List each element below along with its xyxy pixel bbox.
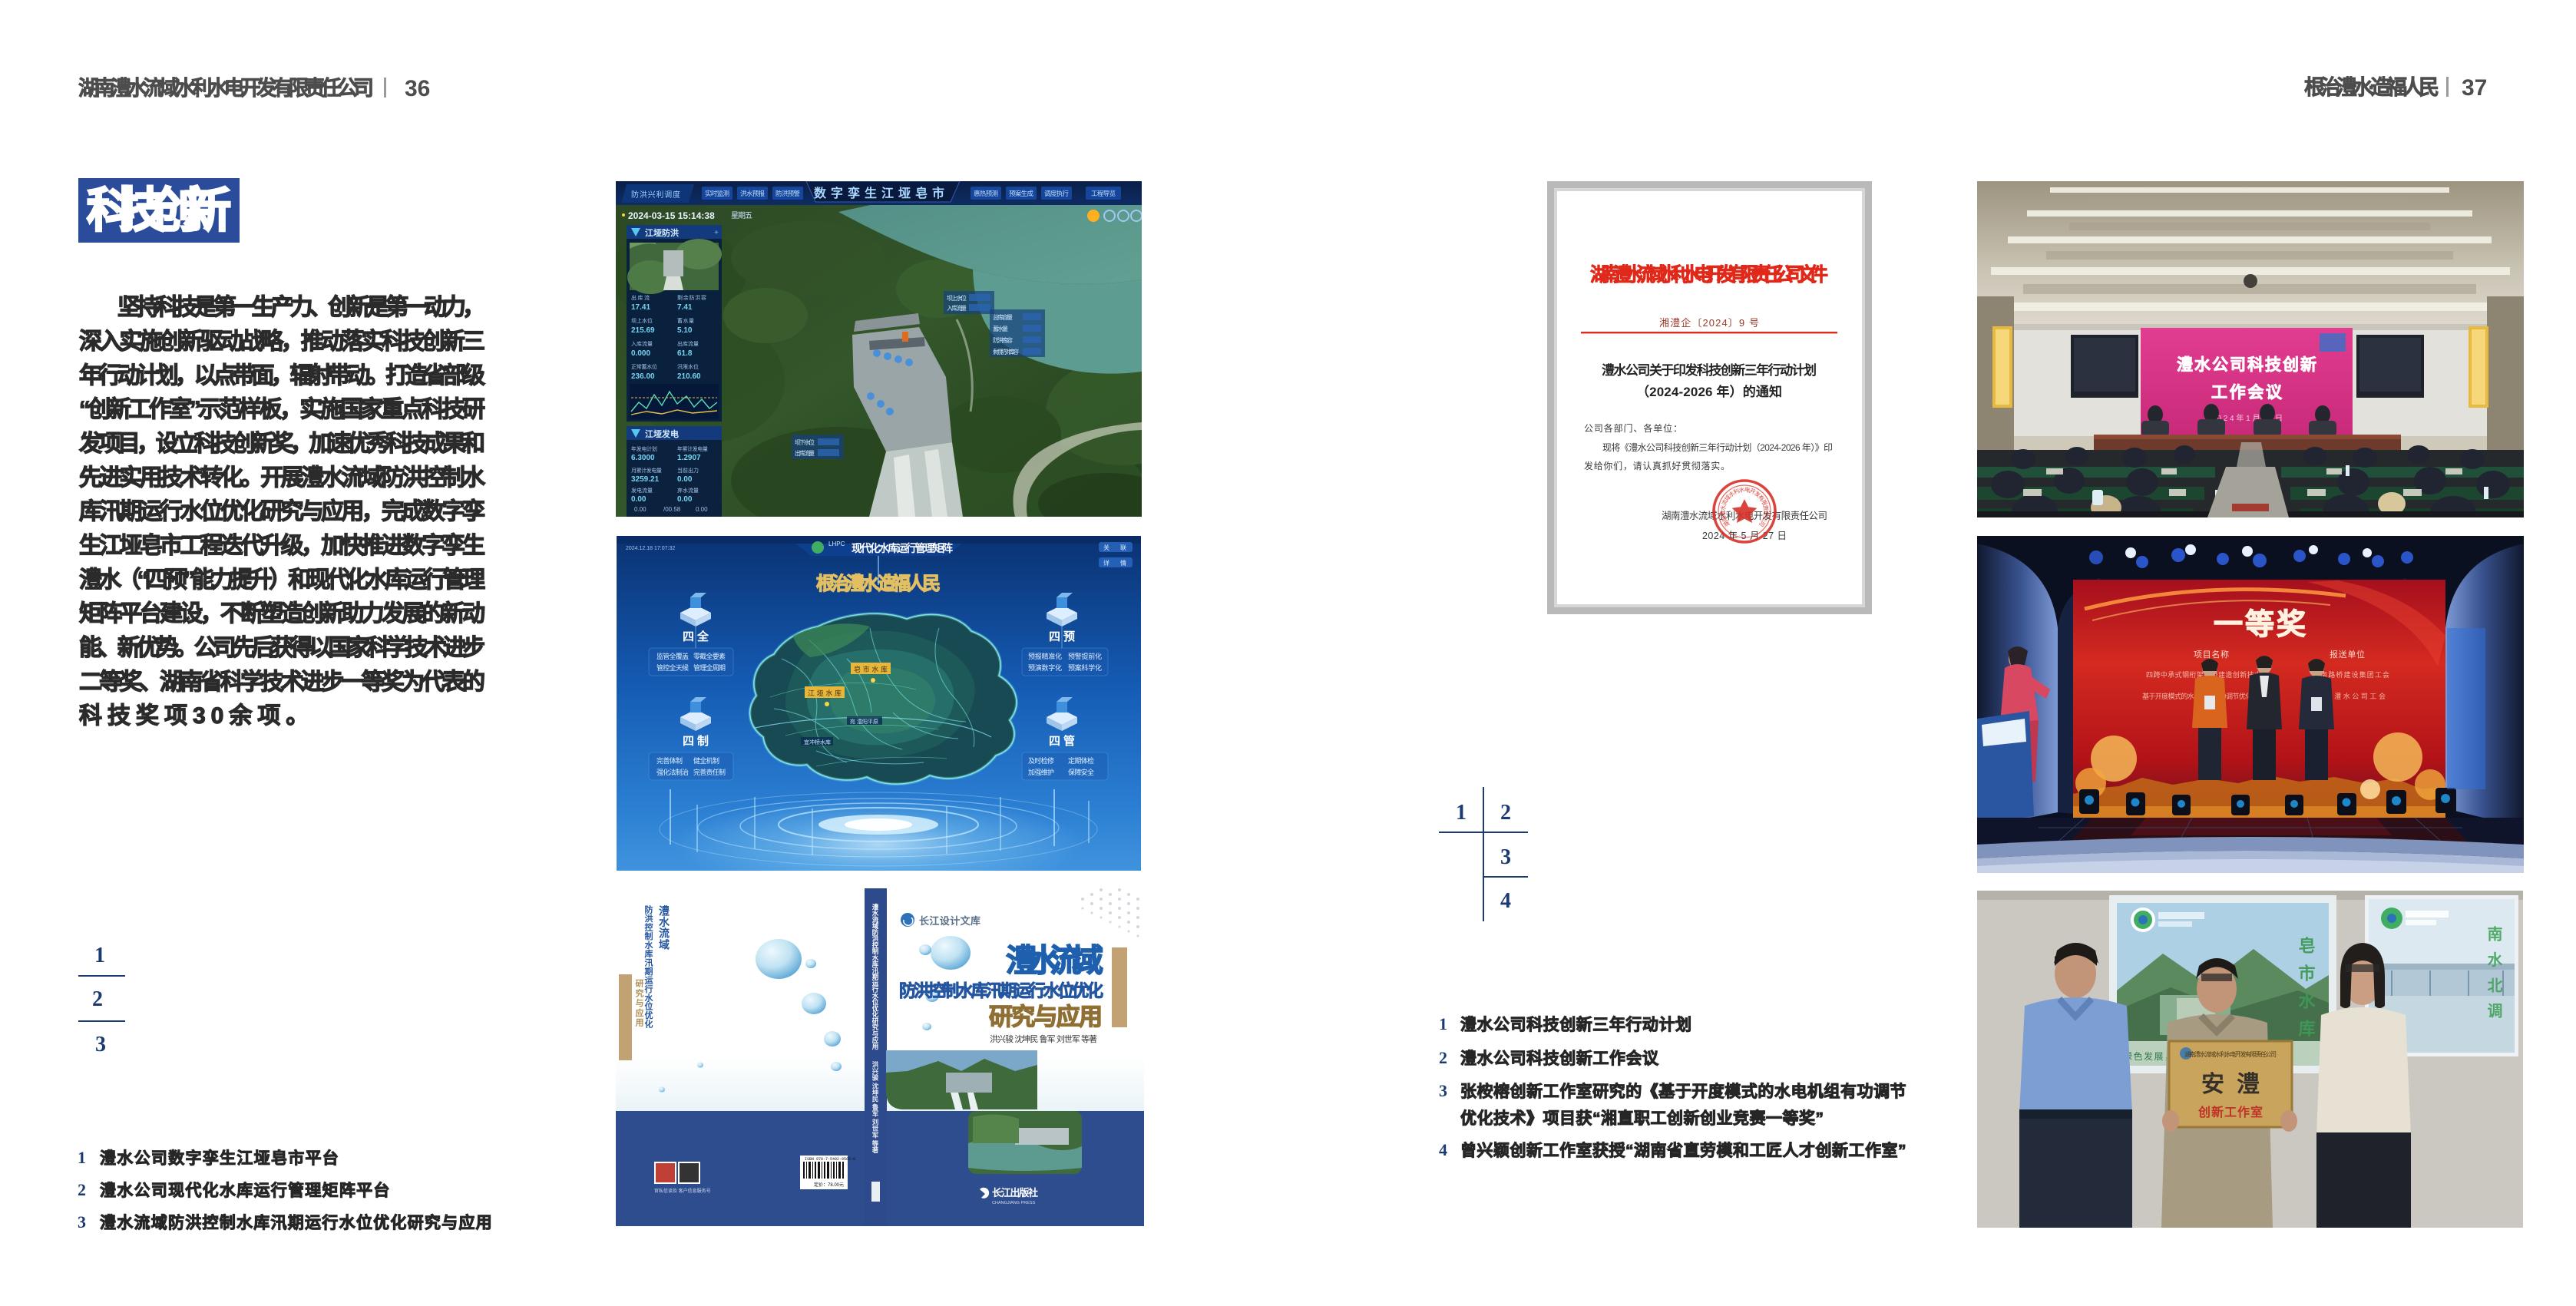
svg-text:（2024-2026 年）的通知: （2024-2026 年）的通知 (1636, 384, 1782, 399)
svg-text:澧水公司关于印发科技创新三年行动计划: 澧水公司关于印发科技创新三年行动计划 (1602, 362, 1817, 378)
svg-text:预案科学化: 预案科学化 (1068, 663, 1102, 672)
svg-text:0.00: 0.00 (696, 506, 708, 513)
svg-text:出库流量: 出库流量 (795, 449, 815, 457)
svg-text:完善体制: 完善体制 (656, 756, 683, 765)
svg-text:坚持科技是第一生产力、创新是第一动力，: 坚持科技是第一生产力、创新是第一动力， (117, 294, 485, 320)
svg-text:预演数字化: 预演数字化 (1028, 663, 1062, 672)
svg-text:科技创新: 科技创新 (87, 184, 231, 237)
svg-text:湖南澧水流域水利水电开发有限责任公司: 湖南澧水流域水利水电开发有限责任公司 (78, 76, 374, 100)
svg-text:CHANGJIANG PRESS: CHANGJIANG PRESS (992, 1201, 1036, 1205)
svg-text:澧水公司数字孪生江垭皂市平台: 澧水公司数字孪生江垭皂市平台 (100, 1149, 339, 1168)
svg-text:7.41: 7.41 (677, 303, 693, 312)
svg-text:出库流: 出库流 (631, 294, 650, 301)
svg-text:预案生成: 预案生成 (1009, 190, 1033, 197)
svg-text:2024.12.18 17:07:32: 2024.12.18 17:07:32 (626, 546, 675, 551)
svg-text:3: 3 (1439, 1081, 1447, 1100)
svg-text:澧水流域防洪控制水库汛期运行水位优化研究与应用: 澧水流域防洪控制水库汛期运行水位优化研究与应用 (871, 903, 879, 1050)
svg-text:+: + (714, 229, 719, 237)
svg-text:及时检修: 及时检修 (1028, 756, 1054, 765)
svg-text:2024-03-15 15:14:38: 2024-03-15 15:14:38 (628, 210, 715, 221)
svg-text:1.2907: 1.2907 (677, 454, 701, 462)
svg-text:坝下水位: 坝下水位 (795, 438, 815, 446)
svg-text:长江设计文库: 长江设计文库 (919, 915, 980, 927)
svg-text:3: 3 (78, 1212, 86, 1232)
svg-text:澧水公司现代化水库运行管理矩阵平台: 澧水公司现代化水库运行管理矩阵平台 (100, 1182, 389, 1200)
svg-text:弃水流量: 弃水流量 (677, 487, 699, 494)
svg-text:生江垭皂市工程迭代升级，加快推进数字孪生: 生江垭皂市工程迭代升级，加快推进数字孪生 (79, 533, 485, 559)
svg-text:ISBN 978-7-5492-9565-8: ISBN 978-7-5492-9565-8 (805, 1157, 855, 1162)
svg-text:监管全覆盖: 监管全覆盖 (656, 652, 689, 660)
svg-text:防洪库容: 防洪库容 (993, 336, 1013, 344)
svg-text:月累计发电量: 月累计发电量 (631, 467, 662, 474)
svg-text:总库容量: 总库容量 (993, 313, 1013, 321)
svg-text:根治澧水·造福人民: 根治澧水·造福人民 (2304, 76, 2439, 99)
svg-text:现将《澧水公司科技创新三年行动计划（2024-2026 年）: 现将《澧水公司科技创新三年行动计划（2024-2026 年）》印 (1602, 441, 1833, 453)
svg-text:蓄水量: 蓄水量 (993, 325, 1008, 332)
svg-text:37: 37 (2462, 75, 2487, 101)
svg-text:年行动计划，以点带面，辐射带动。打造省部级: 年行动计划，以点带面，辐射带动。打造省部级 (79, 362, 485, 388)
svg-text:保障安全: 保障安全 (1068, 768, 1094, 776)
svg-text:零截全要素: 零截全要素 (693, 652, 726, 660)
svg-text:澧水流域防洪控制水库汛期运行水位优化研究与应用: 澧水流域防洪控制水库汛期运行水位优化研究与应用 (100, 1214, 492, 1232)
svg-text:61.8: 61.8 (677, 349, 693, 358)
svg-text:剩余防洪容: 剩余防洪容 (677, 294, 706, 301)
svg-text:210.60: 210.60 (677, 372, 701, 381)
svg-text:防洪控制水库汛期运行水位优化: 防洪控制水库汛期运行水位优化 (643, 904, 654, 1029)
svg-text:洪兴骏 沈坤民 鲁军 刘世军 等著: 洪兴骏 沈坤民 鲁军 刘世军 等著 (990, 1033, 1097, 1044)
svg-text:工作会议: 工作会议 (2211, 383, 2283, 402)
svg-text:4: 4 (1500, 889, 1511, 913)
svg-text:澧水公司科技创新三年行动计划: 澧水公司科技创新三年行动计划 (1460, 1016, 1691, 1034)
svg-text:报送单位: 报送单位 (2330, 649, 2365, 660)
svg-text:安 澧: 安 澧 (2201, 1072, 2260, 1097)
svg-text:36: 36 (405, 76, 430, 101)
svg-text:项目名称: 项目名称 (2194, 649, 2229, 660)
svg-text:澧水流域: 澧水流域 (1006, 943, 1103, 978)
svg-text:现代化水库运行管理矩阵: 现代化水库运行管理矩阵 (852, 542, 953, 554)
svg-text:公司各部门、各单位：: 公司各部门、各单位： (1584, 422, 1682, 434)
svg-text:1: 1 (78, 1148, 86, 1167)
svg-text:1: 1 (1439, 1014, 1447, 1033)
svg-text:5.10: 5.10 (677, 326, 693, 335)
svg-text:年累计发电量: 年累计发电量 (677, 445, 708, 452)
svg-text:创新工作室: 创新工作室 (2197, 1105, 2263, 1119)
svg-text:防洪兴利调度: 防洪兴利调度 (631, 190, 680, 200)
svg-text:2: 2 (1500, 801, 1511, 825)
svg-text:0.00: 0.00 (634, 506, 646, 513)
svg-text:矩阵平台建设，不断塑造创新助力发展的新动: 矩阵平台建设，不断塑造创新助力发展的新动 (79, 600, 485, 627)
svg-text:研究与应用: 研究与应用 (634, 979, 644, 1027)
svg-text:发项目，设立科技创新奖，加速优秀科技成果和: 发项目，设立科技创新奖，加速优秀科技成果和 (78, 431, 485, 457)
svg-text:澧水流域: 澧水流域 (658, 904, 670, 951)
svg-text:澧水（“四预”能力提升）和现代化水库运行管理: 澧水（“四预”能力提升）和现代化水库运行管理 (79, 567, 485, 593)
svg-text:能、新优势。公司先后获得以国家科学技术进步: 能、新优势。公司先后获得以国家科学技术进步 (79, 635, 485, 661)
svg-text:澧水公司科技创新工作会议: 澧水公司科技创新工作会议 (1460, 1050, 1659, 1068)
svg-text:官私信读及 客户信息服务号: 官私信读及 客户信息服务号 (654, 1188, 711, 1194)
svg-text:曾兴颖创新工作室获授“湖南省直劳模和工匠人才创新工作室”: 曾兴颖创新工作室获授“湖南省直劳模和工匠人才创新工作室” (1460, 1142, 1906, 1160)
svg-text:3: 3 (1500, 845, 1511, 869)
svg-text:预报精准化: 预报精准化 (1028, 652, 1062, 660)
svg-text:出库流量: 出库流量 (677, 340, 699, 347)
svg-text:洪兴骏 沈坤民 鲁军 刘世军 等著: 洪兴骏 沈坤民 鲁军 刘世军 等著 (871, 1060, 879, 1154)
svg-text:星期五: 星期五 (731, 211, 752, 220)
svg-text:实时监测: 实时监测 (705, 190, 729, 197)
svg-text:健全机制: 健全机制 (693, 756, 719, 765)
svg-text:1: 1 (1456, 801, 1467, 825)
svg-text:发电流量: 发电流量 (631, 487, 653, 494)
svg-text:优化技术》项目获“湘直职工创新创业竞赛一等奖”: 优化技术》项目获“湘直职工创新创业竞赛一等奖” (1460, 1109, 1824, 1128)
svg-text:先进实用技术转化。开展澧水流域防洪控制水: 先进实用技术转化。开展澧水流域防洪控制水 (79, 465, 486, 491)
svg-text:宛 澧阳平原: 宛 澧阳平原 (850, 718, 878, 725)
svg-text:/00.58: /00.58 (663, 506, 681, 513)
svg-text:调度执行: 调度执行 (1044, 190, 1069, 197)
svg-text:湘澧企〔2024〕9 号: 湘澧企〔2024〕9 号 (1659, 317, 1759, 329)
svg-text:防洪控制水库汛期运行水位优化: 防洪控制水库汛期运行水位优化 (899, 981, 1103, 1000)
svg-text:管理全周期: 管理全周期 (693, 663, 726, 672)
svg-text:2: 2 (1439, 1048, 1447, 1067)
svg-text:管控全天候: 管控全天候 (656, 663, 689, 672)
svg-text:“创新工作室”示范样板，实施国家重点科技研: “创新工作室”示范样板，实施国家重点科技研 (79, 396, 485, 422)
svg-text:定价：78.00元: 定价：78.00元 (814, 1182, 844, 1188)
svg-text:17.41: 17.41 (631, 303, 650, 312)
svg-text:研究与应用: 研究与应用 (989, 1003, 1103, 1030)
svg-text:1: 1 (94, 944, 105, 967)
svg-text:惠热预测: 惠热预测 (974, 190, 998, 197)
svg-text:剩余防洪库容: 剩余防洪库容 (993, 348, 1019, 355)
svg-text:2024 年 5 月 27 日: 2024 年 5 月 27 日 (1702, 531, 1787, 541)
svg-text:定期体检: 定期体检 (1068, 756, 1094, 765)
svg-text:张桉榕创新工作室研究的《基于开度模式的水电机组有功调节: 张桉榕创新工作室研究的《基于开度模式的水电机组有功调节 (1460, 1083, 1906, 1101)
svg-text:4: 4 (1439, 1140, 1447, 1159)
svg-text:年发电计划: 年发电计划 (631, 445, 657, 452)
svg-text:发给你们，请认真抓好贯彻落实。: 发给你们，请认真抓好贯彻落实。 (1584, 460, 1730, 471)
svg-text:预警提前化: 预警提前化 (1068, 652, 1102, 660)
svg-text:0.00: 0.00 (677, 475, 693, 484)
svg-text:3: 3 (95, 1033, 106, 1056)
svg-text:2: 2 (78, 1180, 86, 1199)
svg-text:2: 2 (92, 987, 103, 1011)
svg-text:强化法制治: 强化法制治 (656, 768, 689, 776)
svg-text:0.000: 0.000 (631, 349, 650, 358)
svg-text:工程导览: 工程导览 (1091, 190, 1116, 197)
svg-text:江垭防洪: 江垭防洪 (645, 227, 679, 238)
svg-text:江垭发电: 江垭发电 (645, 428, 679, 439)
svg-text:加强维护: 加强维护 (1028, 768, 1054, 776)
svg-text:湖南澧水流域水利水电开发有限责任公司文件: 湖南澧水流域水利水电开发有限责任公司文件 (1590, 263, 1828, 286)
svg-text:当前出力: 当前出力 (677, 467, 699, 474)
svg-text:入库流量: 入库流量 (947, 304, 967, 312)
svg-text:完善责任制: 完善责任制 (693, 768, 726, 776)
svg-text:洪水预报: 洪水预报 (740, 190, 765, 197)
svg-text:正常蓄水位: 正常蓄水位 (631, 363, 657, 370)
svg-text:215.69: 215.69 (631, 326, 655, 335)
svg-text:0.00: 0.00 (631, 495, 646, 504)
svg-text:一等奖: 一等奖 (2214, 609, 2306, 641)
svg-text:6.3000: 6.3000 (631, 454, 655, 462)
svg-text:科技奖项30余项。: 科技奖项30余项。 (79, 703, 314, 729)
svg-text:坝上水位: 坝上水位 (947, 294, 967, 302)
svg-text:236.00: 236.00 (631, 372, 655, 381)
svg-text:宜冲桥水库: 宜冲桥水库 (804, 739, 831, 746)
svg-text:汛限水位: 汛限水位 (677, 363, 699, 370)
svg-text:湖南澧水流域水利水电开发有限责任公司: 湖南澧水流域水利水电开发有限责任公司 (2184, 1050, 2277, 1058)
svg-text:坝上水位: 坝上水位 (631, 317, 653, 324)
svg-text:库汛期运行水位优化研究与应用，完成数字孪: 库汛期运行水位优化研究与应用，完成数字孪 (79, 498, 485, 524)
svg-text:深入实施创新驱动战略，推动落实科技创新三: 深入实施创新驱动战略，推动落实科技创新三 (79, 329, 485, 355)
svg-text:蓄水量: 蓄水量 (677, 317, 694, 324)
svg-text:二等奖、湖南省科学技术进步一等奖为代表的: 二等奖、湖南省科学技术进步一等奖为代表的 (79, 669, 485, 695)
svg-text:防洪预警: 防洪预警 (775, 190, 800, 197)
svg-text:3259.21: 3259.21 (631, 475, 660, 484)
svg-text:长江出版社: 长江出版社 (992, 1187, 1038, 1199)
svg-text:0.00: 0.00 (677, 495, 693, 504)
svg-text:LHPC: LHPC (828, 541, 845, 547)
svg-text:入库流量: 入库流量 (631, 340, 653, 347)
